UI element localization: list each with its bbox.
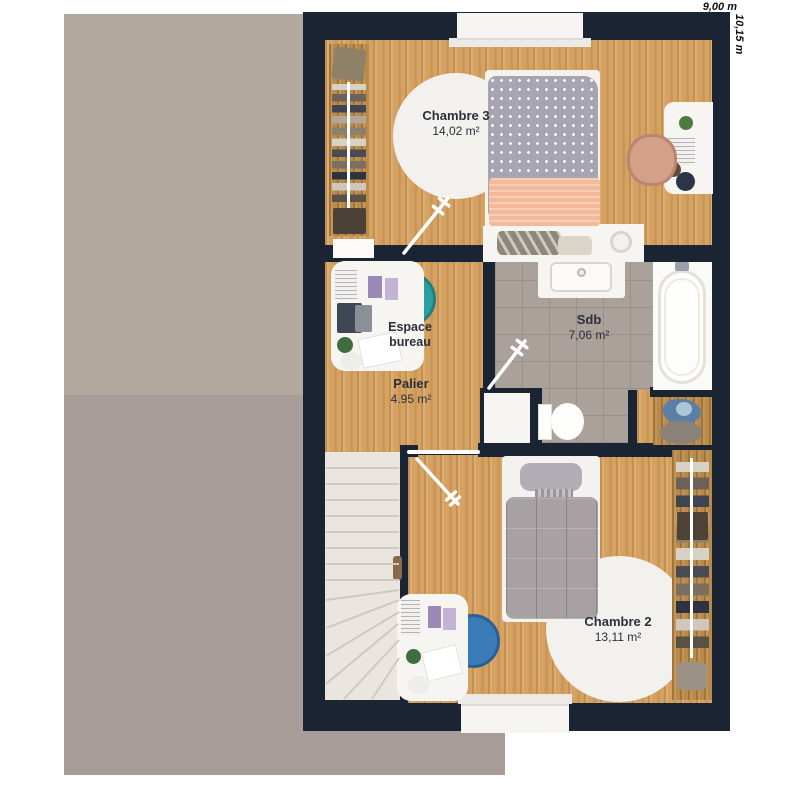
chambre3-desk-plant — [679, 116, 693, 130]
palier-label: Palier 4.95 m² — [391, 376, 432, 407]
sdb-label: Sdb 7,06 m² — [569, 312, 610, 343]
chambre3-label: Chambre 3 14,02 m² — [422, 108, 489, 139]
sdb-area: 7,06 m² — [569, 328, 610, 343]
chambre2-wardrobe-rail — [690, 458, 693, 658]
window-top — [457, 13, 583, 40]
chambre2-bed-duvet — [506, 497, 598, 619]
sdb-vanity-drain — [577, 268, 586, 277]
sdb-name: Sdb — [569, 312, 610, 328]
palier-name: Palier — [391, 376, 432, 392]
chambre3-desk-chair — [627, 134, 677, 186]
chambre2-name: Chambre 2 — [584, 614, 651, 630]
chambre2-area: 13,11 m² — [584, 630, 651, 645]
chambre3-name: Chambre 3 — [422, 108, 489, 124]
duct-shaft — [484, 393, 530, 450]
chambre3-bed-cushion — [497, 231, 561, 255]
bureau-desk-tablet — [355, 305, 372, 332]
chambre3-lamp — [610, 231, 632, 253]
wall-sdb-left — [483, 262, 495, 345]
chambre2-label: Chambre 2 13,11 m² — [584, 614, 651, 645]
chambre3-wardrobe-rail — [347, 82, 350, 214]
chambre3-bed-pillow — [558, 236, 592, 256]
window-bottom-sill — [458, 694, 572, 704]
staircase — [325, 452, 400, 700]
chambre2-desk-book2 — [443, 608, 456, 630]
dimension-width-label: 9,00 m — [660, 1, 737, 13]
espace-bureau-label: Espace bureau — [378, 320, 442, 350]
bureau-desk-bowl — [340, 352, 362, 370]
dimension-height-label: 10,15 m — [733, 14, 745, 54]
chambre3-wardrobe-box-bottom — [333, 208, 366, 234]
chambre2-desk-plant — [406, 649, 421, 664]
palier-area: 4.95 m² — [391, 392, 432, 407]
chambre2-desk-notepad — [401, 600, 420, 636]
bureau-desk-plant — [337, 337, 353, 353]
sdb-bathtub-inner — [664, 278, 700, 376]
chambre2-bed-pillow — [520, 463, 582, 491]
chambre3-desk-item-dark — [676, 172, 695, 191]
chambre3-bed-blanket — [489, 178, 600, 226]
floor-plan-canvas: Chambre 3 14,02 m² Espace bureau Palier … — [0, 0, 800, 800]
chambre2-wardrobe-seat — [677, 662, 707, 690]
chambre2-desk-book1 — [428, 606, 441, 628]
bureau-desk-book1 — [368, 276, 382, 298]
chambre3-radiator — [333, 239, 374, 258]
chambre3-area: 14,02 m² — [422, 124, 489, 139]
sdb-towels-light — [676, 402, 692, 416]
stairs-newel — [393, 556, 402, 580]
sdb-toilet-bowl — [551, 403, 584, 440]
bureau-desk-notepad — [335, 270, 357, 300]
chambre2-desk-bowl — [408, 676, 430, 694]
window-bottom — [461, 704, 569, 733]
bureau-desk-book2 — [385, 278, 398, 300]
sdb-vanity-basin — [550, 262, 612, 292]
chambre3-wardrobe-box-top — [331, 46, 366, 81]
roof-area-upper — [64, 14, 312, 395]
sdb-faucet-icon — [675, 262, 689, 271]
sdb-toilet-tank — [538, 404, 552, 440]
sdb-fur-rug — [660, 421, 702, 444]
